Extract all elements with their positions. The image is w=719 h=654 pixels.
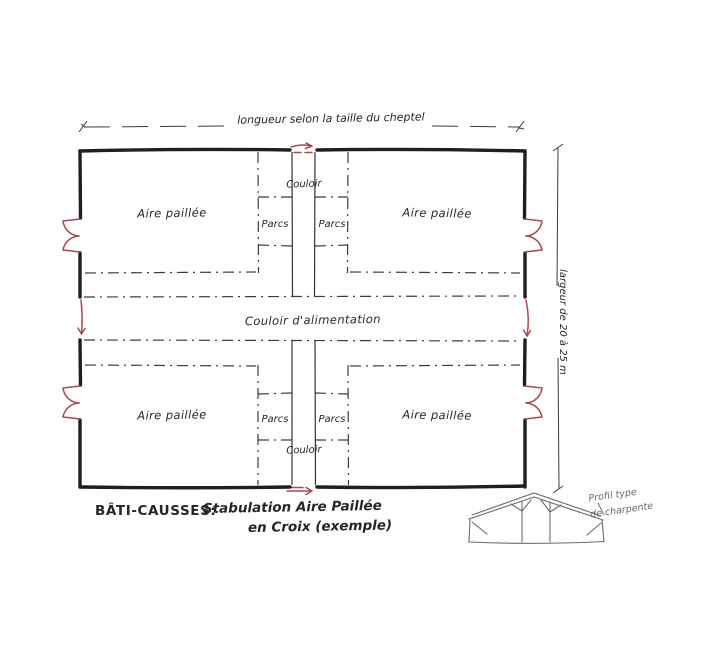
aire-paillee-label-top-left: Aire paillée <box>136 205 207 220</box>
wall-right-3 <box>525 340 526 385</box>
parc-boundary-top-right <box>348 152 349 273</box>
feed-fence-bottom-right <box>350 365 520 366</box>
truss-base-line <box>469 542 604 544</box>
right-dimension-label: largeur de 20 à 25 m <box>557 269 569 375</box>
top-dimension-line-right <box>432 126 520 127</box>
title-line2: en Croix (exemple) <box>248 517 392 536</box>
couloir-alimentation-label: Couloir d'alimentation <box>245 312 381 328</box>
aire-paillee-label-top-right: Aire paillée <box>401 205 472 220</box>
door-leaf <box>63 236 80 252</box>
arrow-shaft <box>81 300 82 334</box>
parc-divider <box>315 245 348 246</box>
flow-arrow-icon-top <box>291 143 312 153</box>
couloir-label-bottom: Couloir <box>286 444 322 456</box>
title-prefix: BÂTI-CAUSSES: <box>95 502 216 519</box>
roof-truss-sketch <box>469 493 604 543</box>
parc-divider <box>315 393 348 394</box>
parc-divider <box>258 393 292 394</box>
truss-brace <box>522 500 531 511</box>
door-leaf <box>525 219 542 236</box>
wall-right-1 <box>525 151 526 218</box>
parcs-label-top-left: Parcs <box>262 219 289 230</box>
truss-wall-right <box>602 520 604 542</box>
corridor-edge-bottom-right <box>315 341 316 485</box>
sketch-page: longueur selon la taille du cheptel larg… <box>0 0 719 654</box>
truss-brace <box>587 523 601 535</box>
feed-fence-bottom-left <box>85 365 256 366</box>
wall-bottom-left <box>80 487 290 488</box>
double-door-icon-left-bottom <box>63 386 80 419</box>
parc-boundary-bottom-right <box>348 365 349 485</box>
double-door-icon-left-top <box>63 219 80 252</box>
feeding-corridor-edge-bottom <box>84 340 521 341</box>
aire-paillee-label-bottom-right: Aire paillée <box>401 407 472 422</box>
flow-arrow-icon-left <box>78 300 85 334</box>
corridor-edge-top-right <box>315 152 316 296</box>
double-door-icon-right-top <box>525 219 542 252</box>
flow-arrow-icon-right <box>524 300 531 336</box>
door-leaf <box>525 236 542 252</box>
top-dimension-line-left <box>84 126 230 127</box>
door-leaf <box>63 403 80 419</box>
truss-brace <box>472 522 487 534</box>
wall-left-1 <box>80 151 81 218</box>
door-leaf <box>63 386 80 403</box>
parc-divider <box>258 245 292 246</box>
arrow-shaft <box>526 300 528 336</box>
wall-top-right <box>317 149 525 151</box>
top-dimension-label: longueur selon la taille du cheptel <box>237 110 425 126</box>
door-leaf <box>525 386 542 403</box>
title-line1: Stabulation Aire Paillée <box>203 498 382 517</box>
wall-left-3 <box>80 340 81 385</box>
feed-fence-top-left <box>85 272 256 273</box>
door-leaf <box>63 219 80 236</box>
truss-brace <box>550 505 561 512</box>
right-dimension-line-top <box>557 148 558 286</box>
wall-top-left <box>80 149 290 151</box>
parcs-label-top-right: Parcs <box>319 219 346 230</box>
wall-bottom-right <box>317 486 525 488</box>
feeding-corridor-edge-top <box>84 296 521 297</box>
corridor-edge-top-left <box>292 152 293 296</box>
plan-drawing: longueur selon la taille du cheptel larg… <box>0 0 719 654</box>
right-dimension-line-bottom <box>558 358 559 489</box>
door-leaf <box>525 403 542 419</box>
truss-wall-left <box>469 519 470 542</box>
truss-brace <box>511 504 522 511</box>
truss-label-line1: Profil type <box>588 487 638 505</box>
parcs-label-bottom-right: Parcs <box>319 414 346 425</box>
double-door-icon-right-bottom <box>525 386 542 419</box>
parcs-label-bottom-left: Parcs <box>262 414 289 425</box>
right-dimension-tick-bottom <box>553 486 563 493</box>
aire-paillee-label-bottom-left: Aire paillée <box>136 407 207 422</box>
feed-fence-top-right <box>350 272 520 273</box>
couloir-label-top: Couloir <box>286 178 322 190</box>
truss-label-line2: de charpente <box>590 501 654 521</box>
flow-arrow-icon-bottom <box>287 488 312 495</box>
parc-boundary-top-left <box>258 152 259 273</box>
